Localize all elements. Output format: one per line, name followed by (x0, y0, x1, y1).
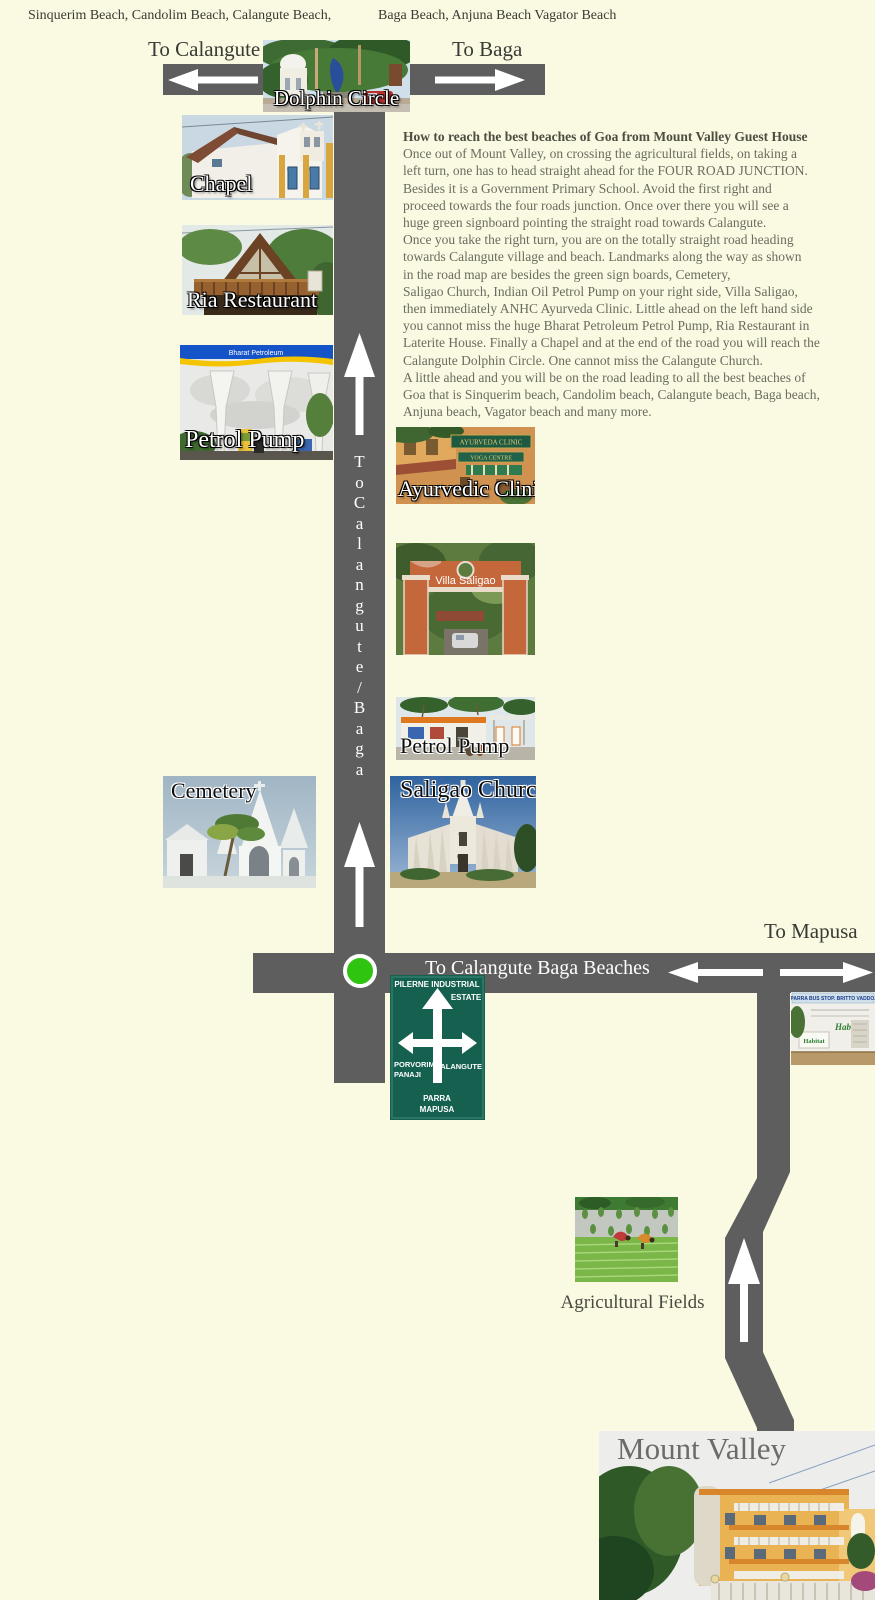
to-baga-label: To Baga (452, 37, 522, 62)
right-arrow-icon (433, 68, 525, 92)
svg-text:PARRA BUS STOP. BRITTO VADDO.: PARRA BUS STOP. BRITTO VADDO. (791, 996, 875, 1002)
agricultural-fields-label: Agricultural Fields (545, 1292, 720, 1314)
ayurvedic-clinic-label: Ayurvedic Clinic (398, 476, 535, 502)
svg-text:ESTATE: ESTATE (451, 993, 482, 1002)
svg-text:PILERNE INDUSTRIAL: PILERNE INDUSTRIAL (394, 980, 479, 989)
saligao-church-photo: Saligao Church (390, 776, 536, 888)
mount-valley-label: Mount Valley (617, 1431, 786, 1467)
svg-text:Bharat Petroleum: Bharat Petroleum (229, 350, 284, 357)
ayurvedic-clinic-photo: AYURVEDA CLINIC YOGA CENTRE Ayurvedic Cl… (396, 427, 535, 504)
saligao-church-label: Saligao Church (400, 777, 536, 804)
ria-restaurant-photo: Ria Restaurant (182, 225, 333, 315)
up-arrow-icon (334, 333, 385, 435)
junction-signal-light (343, 954, 377, 988)
petrol-pump-bharat-label: Petrol Pump (185, 427, 304, 454)
up-arrow-icon (334, 822, 385, 927)
svg-text:PARRA: PARRA (423, 1094, 451, 1103)
chapel-photo: Chapel (182, 115, 333, 200)
petrol-pump-bharat-photo: Bharat Petroleum Petrol Pump (180, 345, 333, 460)
svg-text:PORVORIM: PORVORIM (394, 1060, 435, 1069)
svg-text:PANAJI: PANAJI (394, 1070, 421, 1079)
villa-saligao-photo: Villa Saligao (396, 543, 535, 655)
cemetery-label: Cemetery (171, 778, 257, 804)
dolphin-circle-photo: Dolphin Circle (263, 40, 410, 112)
mount-valley-photo: Mount Valley (599, 1431, 875, 1600)
dolphin-circle-label: Dolphin Circle (263, 86, 410, 111)
left-arrow-icon (168, 68, 260, 92)
svg-text:MAPUSA: MAPUSA (420, 1105, 455, 1114)
description-title: How to reach the best beaches of Goa fro… (403, 128, 820, 145)
right-arrow-icon (778, 961, 873, 984)
goa-route-map: Sinquerim Beach, Candolim Beach, Calangu… (0, 0, 875, 1600)
petrol-pump-indian-oil-photo: Petrol Pump (396, 697, 535, 760)
petrol-pump-indian-oil-label: Petrol Pump (400, 733, 509, 759)
to-mapusa-label: To Mapusa (764, 919, 858, 944)
description-body: Once out of Mount Valley, on crossing th… (403, 145, 820, 420)
svg-text:Habitat: Habitat (803, 1038, 825, 1045)
svg-text:CALANGUTE: CALANGUTE (435, 1062, 482, 1071)
road-direction-label: ToCalangute/Baga (334, 452, 385, 780)
description-block: How to reach the best beaches of Goa fro… (403, 128, 820, 420)
beaches-list-left: Sinquerim Beach, Candolim Beach, Calangu… (28, 8, 331, 24)
green-signboard-photo: PILERNE INDUSTRIAL ESTATE PORVORIM PANAJ… (390, 975, 485, 1120)
ria-restaurant-label: Ria Restaurant (187, 287, 317, 313)
svg-text:AYURVEDA CLINIC: AYURVEDA CLINIC (460, 439, 523, 447)
svg-text:Villa Saligao: Villa Saligao (435, 575, 495, 587)
svg-text:YOGA CENTRE: YOGA CENTRE (470, 456, 512, 462)
cemetery-photo: Cemetery (163, 776, 316, 888)
bus-stop-photo: PARRA BUS STOP. BRITTO VADDO. Habitat Ha… (791, 992, 875, 1065)
chapel-label: Chapel (190, 171, 252, 197)
agricultural-fields-photo (575, 1197, 678, 1282)
beaches-list-right: Baga Beach, Anjuna Beach Vagator Beach (378, 8, 616, 24)
left-arrow-icon (668, 961, 765, 984)
to-calangute-label: To Calangute (148, 37, 260, 62)
